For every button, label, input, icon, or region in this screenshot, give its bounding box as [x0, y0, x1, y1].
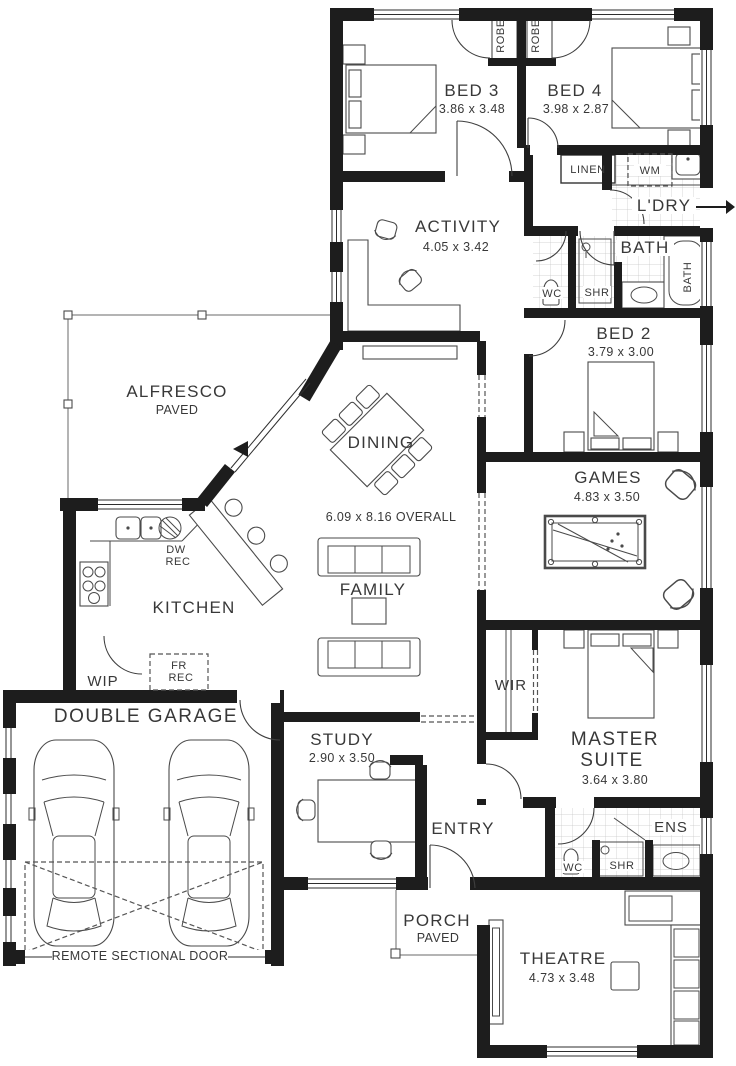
bed3-dims: 3.86 x 3.48 [439, 102, 505, 116]
family-furniture [318, 538, 420, 676]
window-theatre [547, 1045, 637, 1058]
overall-dims: 6.09 x 8.16 OVERALL [326, 510, 457, 524]
garage-entry-opening [237, 690, 280, 703]
window-bath [700, 242, 713, 306]
wm-label: WM [640, 165, 661, 177]
alfresco-label: ALFRESCO [126, 382, 227, 401]
bed2-furniture [564, 362, 678, 452]
robe-bed3-door [452, 20, 490, 58]
bed3-door [457, 121, 512, 176]
entry-label: ENTRY [431, 819, 494, 838]
floor-plan-page: BED 3 3.86 x 3.48 BED 4 3.98 x 2.87 ROBE… [0, 0, 736, 1066]
window-ens [700, 818, 713, 854]
fr-label-2: REC [168, 672, 193, 684]
entry-front-door [430, 845, 475, 888]
bathtub-label: BATH [682, 262, 694, 293]
bed2-label: BED 2 [596, 324, 651, 343]
alfresco-slider [231, 379, 310, 472]
garage-label: DOUBLE GARAGE [54, 706, 238, 727]
master-dims: 3.64 x 3.80 [582, 773, 648, 787]
wip-door [104, 636, 142, 674]
dw-label-2: REC [165, 556, 190, 568]
bed4-label: BED 4 [547, 81, 602, 100]
bed4-furniture [612, 27, 706, 148]
window-bed4 [700, 50, 713, 125]
window-study [308, 877, 396, 890]
games-dims: 4.83 x 3.50 [574, 490, 640, 504]
family-label: FAMILY [340, 580, 406, 599]
sideboard [363, 346, 457, 359]
bed3-furniture [343, 45, 436, 154]
window-master [700, 665, 713, 762]
ens-shr-label: SHR [609, 860, 634, 872]
games-label: GAMES [574, 468, 641, 487]
window-kitchen [98, 498, 182, 511]
porch-sub: PAVED [417, 931, 460, 945]
laundry-label: L'DRY [637, 196, 691, 215]
window-games [700, 487, 713, 588]
wir-label: WIR [495, 677, 527, 694]
alfresco-entry-arrow-icon [233, 441, 248, 457]
window-activity-1 [330, 210, 343, 242]
window-activity-2 [330, 272, 343, 302]
bath-label: BATH [621, 238, 670, 257]
dining-label: DINING [348, 433, 415, 452]
bed2-door [529, 320, 565, 356]
window-bed2 [700, 345, 713, 432]
master-furniture [564, 630, 678, 718]
dw-label-1: DW [166, 544, 186, 556]
bath-wc-label: WC [542, 288, 562, 300]
fr-label-1: FR [171, 660, 187, 672]
wip-label: WIP [87, 673, 118, 690]
theatre-furniture [489, 891, 703, 1046]
study-dims: 2.90 x 3.50 [309, 751, 375, 765]
bed4-door [528, 118, 558, 148]
garage-door-label: REMOTE SECTIONAL DOOR [52, 949, 229, 963]
activity-dims: 4.05 x 3.42 [423, 240, 489, 254]
kitchen-label: KITCHEN [152, 598, 235, 617]
window-top-right [592, 8, 674, 21]
activity-label: ACTIVITY [415, 217, 501, 236]
bed4-dims: 3.98 x 2.87 [543, 102, 609, 116]
bath-shr-label: SHR [584, 287, 609, 299]
robe-bed4-door [552, 20, 590, 58]
ens-label: ENS [654, 819, 688, 836]
master-door [486, 764, 521, 799]
alfresco-sub: PAVED [156, 403, 199, 417]
floor-plan-svg: BED 3 3.86 x 3.48 BED 4 3.98 x 2.87 ROBE… [0, 0, 736, 1066]
garage-cars [29, 740, 254, 946]
master-label-2: SUITE [580, 750, 643, 771]
study-furniture [297, 761, 417, 860]
linen-label: LINEN [570, 164, 605, 176]
games-furniture [545, 465, 701, 615]
study-label: STUDY [310, 730, 374, 749]
window-top-left [374, 8, 459, 21]
porch-label: PORCH [403, 911, 470, 930]
theatre-label: THEATRE [520, 949, 606, 968]
robe-bed3-label: ROBE [495, 19, 507, 53]
ens-wc-label: WC [563, 862, 583, 874]
theatre-dims: 4.73 x 3.48 [529, 971, 595, 985]
robe-bed4-label: ROBE [530, 19, 542, 53]
bed3-label: BED 3 [444, 81, 499, 100]
master-label-1: MASTER [571, 729, 659, 750]
bed2-dims: 3.79 x 3.00 [588, 345, 654, 359]
